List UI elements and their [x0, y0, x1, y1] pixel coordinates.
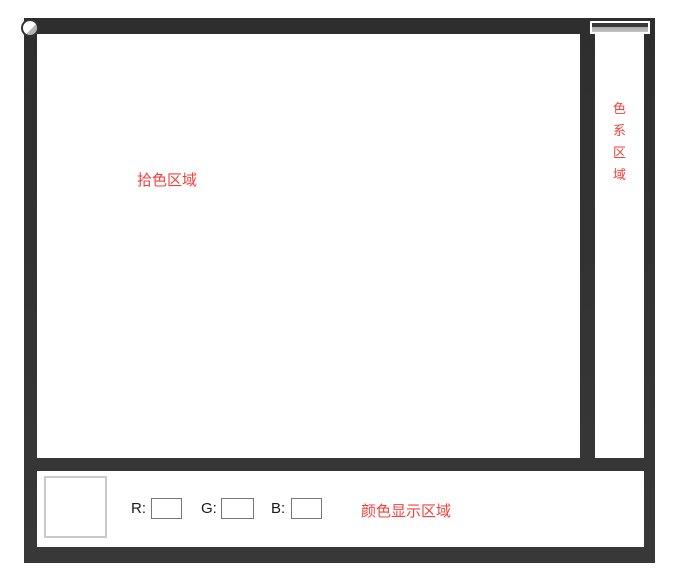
hue-strip-label-char: 区 — [613, 146, 626, 159]
hue-strip-label-char: 系 — [613, 124, 626, 137]
color-display-panel: R: G: B: 颜色显示区域 — [37, 471, 644, 547]
r-input[interactable] — [151, 498, 182, 519]
g-label: G: — [201, 500, 217, 517]
color-preview-swatch — [44, 476, 107, 538]
b-label: B: — [271, 500, 285, 517]
display-area-label: 颜色显示区域 — [361, 500, 451, 521]
r-label: R: — [131, 500, 146, 517]
hue-strip-area[interactable]: 色 系 区 域 — [595, 34, 644, 458]
b-input[interactable] — [291, 498, 322, 519]
color-picking-area[interactable]: 拾色区域 — [37, 34, 580, 458]
color-picker-window: 拾色区域 色 系 区 域 R: G: B: 颜色显示区域 — [24, 18, 655, 563]
g-input[interactable] — [221, 498, 254, 519]
picker-area-label: 拾色区域 — [137, 169, 197, 190]
picker-cursor-icon[interactable] — [21, 19, 39, 37]
hue-strip-label-char: 域 — [613, 168, 626, 181]
hue-strip-label-char: 色 — [613, 102, 626, 115]
page: 拾色区域 色 系 区 域 R: G: B: 颜色显示区域 — [0, 0, 698, 588]
hue-slider-handle-icon[interactable] — [590, 21, 650, 34]
